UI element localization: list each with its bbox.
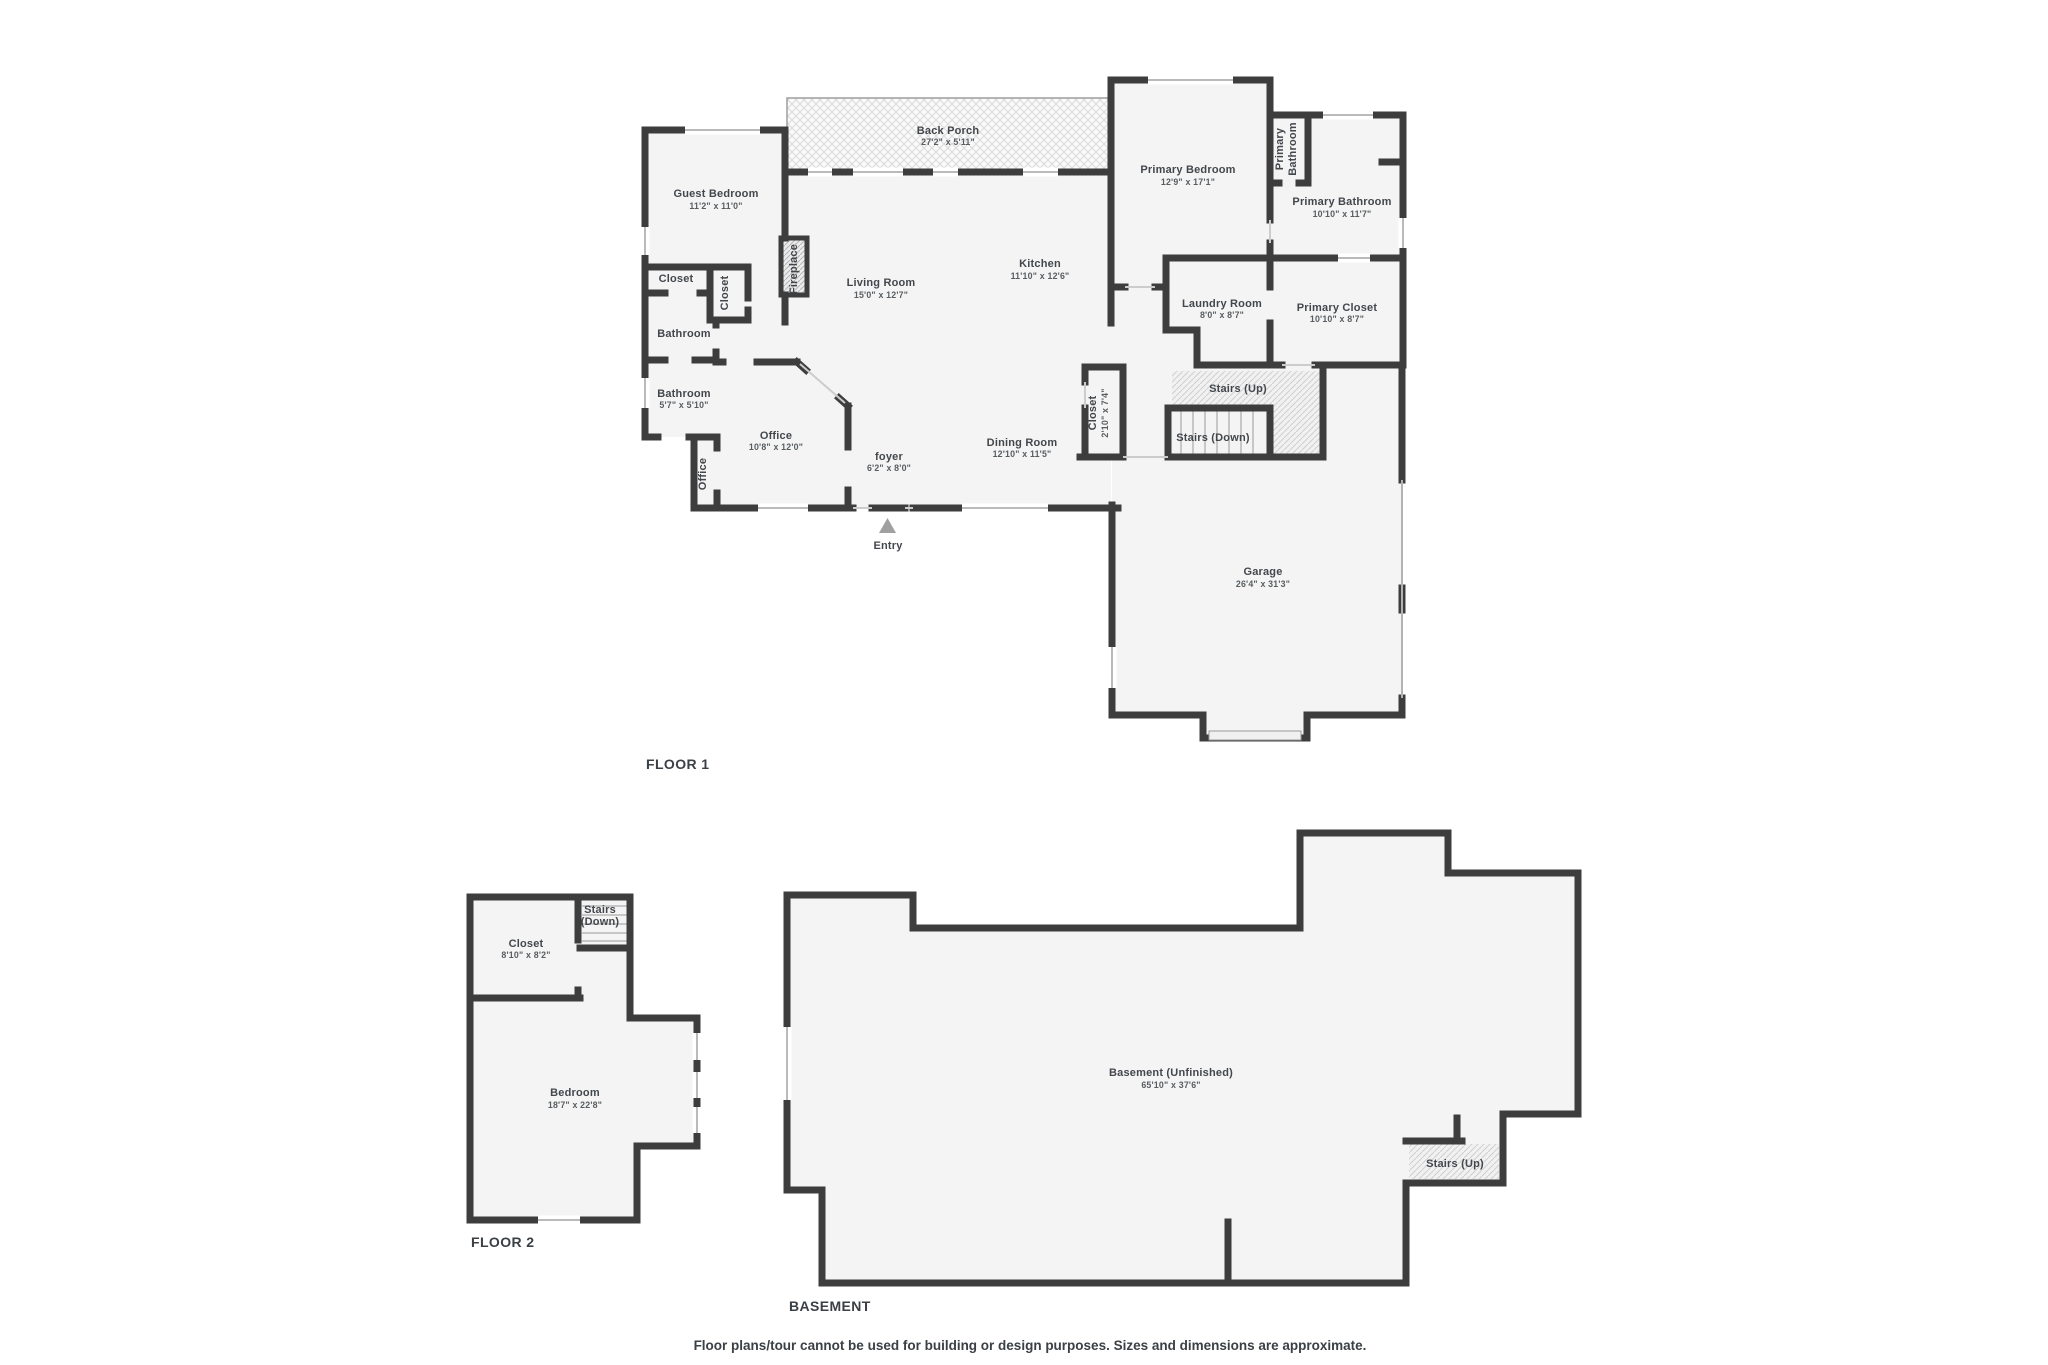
room-dims-garage: 26'4" x 31'3" <box>1236 579 1290 589</box>
floor2-title: FLOOR 2 <box>471 1234 534 1250</box>
room-label-primary-bedroom: Primary Bedroom <box>1140 164 1235 176</box>
room-dims-primary-bedroom: 12'9" x 17'1" <box>1161 177 1215 187</box>
room-label-primary-bathroom: Primary Bathroom <box>1292 196 1391 208</box>
floor1-title: FLOOR 1 <box>646 756 709 772</box>
room-label-office-nook: Office <box>697 458 709 490</box>
garage-door <box>1209 731 1301 740</box>
disclaimer-text: Floor plans/tour cannot be used for buil… <box>694 1338 1367 1353</box>
floor1-plan: Back Porch 27'2" x 5'11" Guest Bedroom 1… <box>641 76 1408 773</box>
basement-title: BASEMENT <box>789 1298 871 1314</box>
room-label-closet-a: Closet <box>659 273 694 285</box>
room-label-floor2-stairs-line1: Stairs <box>584 904 616 916</box>
room-label-primary-wc-line2: Bathroom <box>1287 122 1299 176</box>
room-label-garage: Garage <box>1243 566 1282 578</box>
floorplan-page: Back Porch 27'2" x 5'11" Guest Bedroom 1… <box>0 0 2048 1365</box>
room-label-guest-bedroom: Guest Bedroom <box>673 188 758 200</box>
room-dims-primary-closet: 10'10" x 8'7" <box>1310 314 1364 324</box>
room-dims-floor2-bedroom: 18'7" x 22'8" <box>548 1100 602 1110</box>
room-dims-floor2-closet: 8'10" x 8'2" <box>501 950 550 960</box>
basement-windows <box>783 1027 792 1100</box>
room-label-basement: Basement (Unfinished) <box>1109 1067 1233 1079</box>
room-label-floor2-closet: Closet <box>509 938 544 950</box>
room-label-stairs-down: Stairs (Down) <box>1176 432 1250 444</box>
room-label-fireplace: Fireplace <box>788 244 800 294</box>
room-dims-primary-bathroom: 10'10" x 11'7" <box>1313 209 1372 219</box>
floor2-plan: Closet 8'10" x 8'2" Stairs (Down) Bedroo… <box>470 897 702 1250</box>
room-label-dining-room: Dining Room <box>987 437 1058 449</box>
room-dims-bathroom-b: 5'7" x 5'10" <box>659 400 708 410</box>
entry-label: Entry <box>873 540 903 552</box>
room-label-closet-b: Closet <box>719 275 731 310</box>
room-label-closet-c: Closet <box>1087 395 1099 430</box>
basement-plan: Basement (Unfinished) 65'10" x 37'6" Sta… <box>783 833 1579 1314</box>
room-label-floor2-bedroom: Bedroom <box>550 1087 600 1099</box>
room-label-bathroom-a: Bathroom <box>657 328 711 340</box>
room-dims-back-porch: 27'2" x 5'11" <box>921 137 975 147</box>
room-dims-guest-bedroom: 11'2" x 11'0" <box>689 201 742 211</box>
room-label-back-porch: Back Porch <box>917 125 980 137</box>
room-dims-foyer: 6'2" x 8'0" <box>867 463 911 473</box>
room-label-foyer: foyer <box>875 451 903 463</box>
room-label-primary-wc-line1: Primary <box>1274 127 1286 170</box>
room-label-stairs-up: Stairs (Up) <box>1209 383 1267 395</box>
entry-arrow-icon <box>879 518 896 533</box>
room-dims-living-room: 15'0" x 12'7" <box>854 290 908 300</box>
room-dims-office: 10'8" x 12'0" <box>749 442 803 452</box>
room-label-bathroom-b: Bathroom <box>657 388 711 400</box>
room-label-basement-stairs-up: Stairs (Up) <box>1426 1158 1484 1170</box>
room-dims-laundry-room: 8'0" x 8'7" <box>1200 310 1244 320</box>
room-dims-dining-room: 12'10" x 11'5" <box>993 449 1052 459</box>
basement-room-fill <box>787 833 1578 1283</box>
room-label-primary-closet: Primary Closet <box>1297 302 1378 314</box>
room-dims-kitchen: 11'10" x 12'6" <box>1011 271 1070 281</box>
room-label-laundry-room: Laundry Room <box>1182 298 1262 310</box>
room-dims-basement: 65'10" x 37'6" <box>1141 1080 1200 1090</box>
floorplan-image: Back Porch 27'2" x 5'11" Guest Bedroom 1… <box>0 0 2048 1365</box>
room-label-office: Office <box>760 430 792 442</box>
room-label-kitchen: Kitchen <box>1019 258 1061 270</box>
room-label-living-room: Living Room <box>847 277 916 289</box>
room-dims-closet-c: 2'10" x 7'4" <box>1100 388 1110 437</box>
room-label-floor2-stairs-line2: (Down) <box>581 916 620 928</box>
